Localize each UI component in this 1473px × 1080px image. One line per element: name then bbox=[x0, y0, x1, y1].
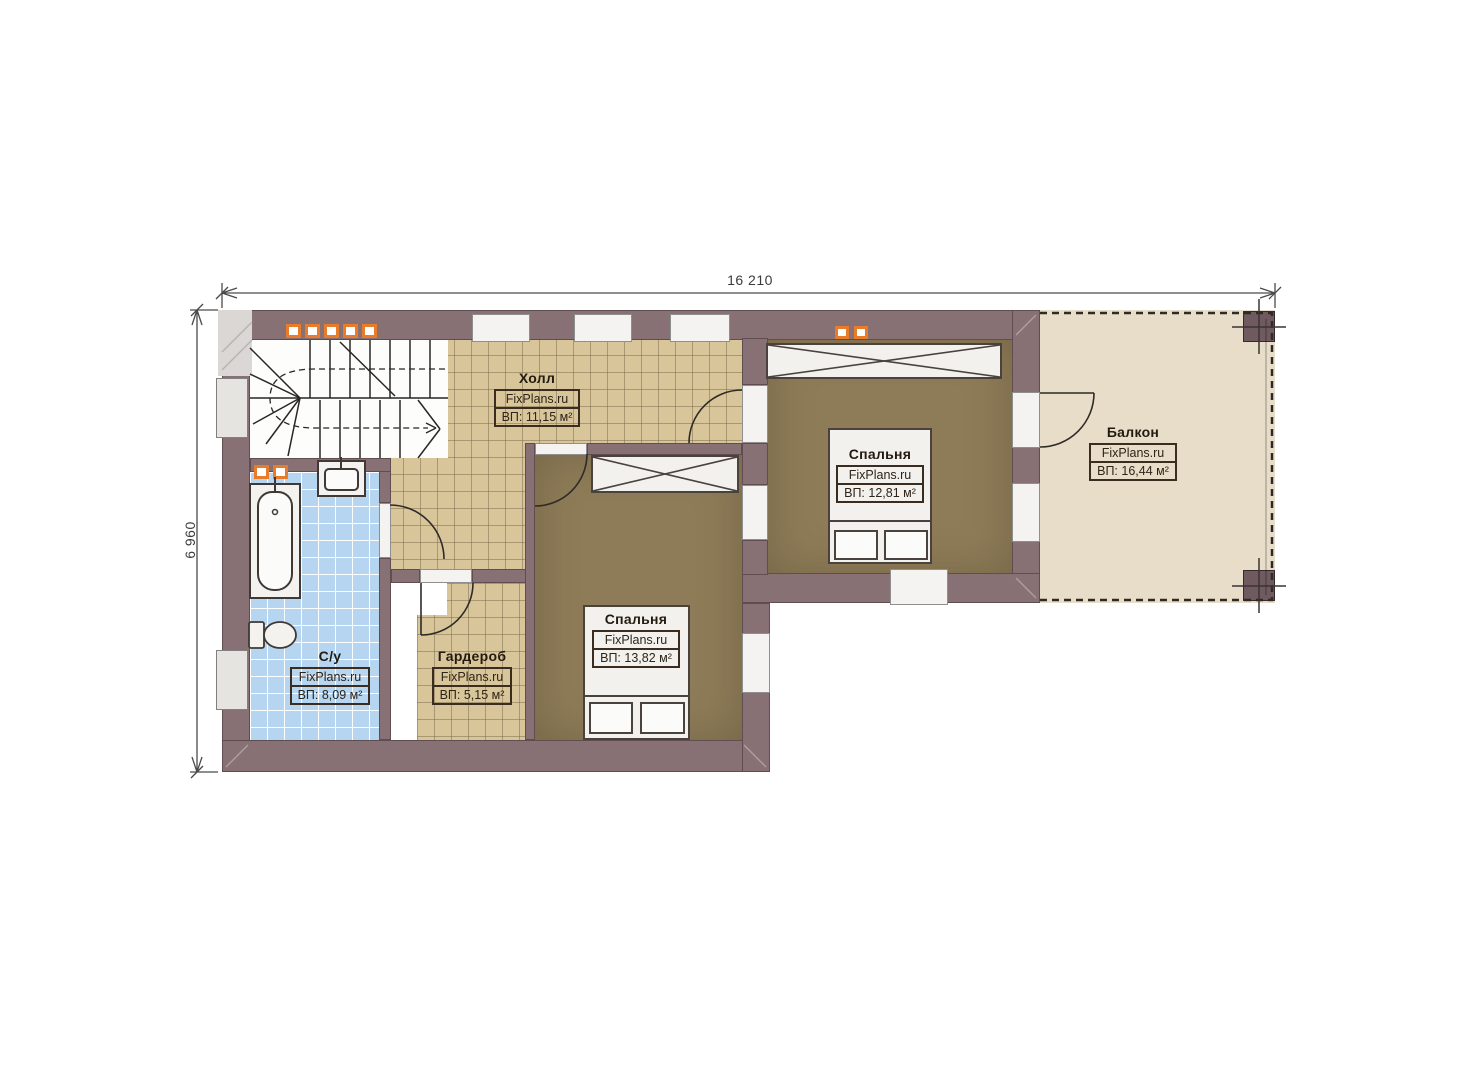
room-name: Спальня bbox=[832, 446, 928, 462]
room-label-wardrobe: Гардероб FixPlans.ru ВП: 5,15 м² bbox=[425, 648, 519, 705]
room-label-balcony: Балкон FixPlans.ru ВП: 16,44 м² bbox=[1085, 424, 1181, 481]
window-bedroom-balcony bbox=[1012, 483, 1040, 542]
window-lower-right-wall bbox=[742, 633, 770, 693]
room-name: Холл bbox=[489, 370, 585, 386]
window-left-upper bbox=[216, 378, 248, 438]
room-name: Гардероб bbox=[425, 648, 519, 664]
room-label-bedroom-lower: Спальня FixPlans.ru ВП: 13,82 м² bbox=[588, 611, 684, 668]
accent-window-7 bbox=[854, 326, 868, 339]
watermark: FixPlans.ru bbox=[292, 669, 369, 685]
label-box: FixPlans.ru ВП: 8,09 м² bbox=[290, 667, 371, 705]
accent-window-6 bbox=[835, 326, 849, 339]
room-area: ВП: 16,44 м² bbox=[1091, 461, 1175, 479]
wall-hall-wardrobe-a bbox=[391, 569, 420, 583]
door-opening-bathroom bbox=[379, 503, 391, 558]
door-opening-bedroom-upper bbox=[742, 385, 768, 443]
wall-bedroom-lower-left bbox=[525, 443, 535, 740]
room-name: Балкон bbox=[1085, 424, 1181, 440]
balcony-post-bottom bbox=[1243, 570, 1275, 601]
label-box: FixPlans.ru ВП: 12,81 м² bbox=[836, 465, 924, 503]
room-area: ВП: 13,82 м² bbox=[594, 648, 678, 666]
door-opening-bedroom-lower bbox=[535, 443, 587, 455]
wall-hall-bedroom-b bbox=[742, 443, 768, 485]
watermark: FixPlans.ru bbox=[434, 669, 511, 685]
bed-upper-line bbox=[828, 520, 932, 522]
accent-window-5 bbox=[362, 324, 377, 338]
accent-window-9 bbox=[273, 465, 288, 479]
window-top-3 bbox=[670, 314, 730, 342]
watermark: FixPlans.ru bbox=[594, 632, 678, 648]
label-box: FixPlans.ru ВП: 5,15 м² bbox=[432, 667, 513, 705]
room-name: С/у bbox=[284, 648, 376, 664]
window-left-lower bbox=[216, 650, 248, 710]
wardrobe-closet-lower-bedroom bbox=[591, 455, 739, 493]
window-bottom-right-section bbox=[890, 569, 948, 605]
bathtub-basin bbox=[257, 491, 293, 591]
stairs-floor bbox=[250, 338, 448, 458]
wall-bath-hall-b bbox=[379, 558, 391, 740]
wall-hall-bedroom-a bbox=[742, 338, 768, 385]
label-box: FixPlans.ru ВП: 16,44 м² bbox=[1089, 443, 1177, 481]
room-label-bedroom-upper: Спальня FixPlans.ru ВП: 12,81 м² bbox=[832, 446, 928, 503]
door-opening-balcony bbox=[1012, 392, 1040, 448]
room-area: ВП: 11,15 м² bbox=[496, 407, 579, 425]
watermark: FixPlans.ru bbox=[838, 467, 922, 483]
bed-lower-pillow-1 bbox=[589, 702, 633, 734]
accent-window-1 bbox=[286, 324, 301, 338]
floor-plan-canvas: 16 210 6 960 Холл FixPlans.ru ВП: 11,15 … bbox=[0, 0, 1473, 1080]
label-box: FixPlans.ru ВП: 13,82 м² bbox=[592, 630, 680, 668]
wardrobe-closet-upper-bedroom bbox=[766, 343, 1002, 379]
corridor-gap bbox=[391, 583, 417, 740]
bed-lower-pillow-2 bbox=[640, 702, 685, 734]
accent-window-2 bbox=[305, 324, 320, 338]
bed-upper-pillow-2 bbox=[884, 530, 928, 560]
room-label-hall: Холл FixPlans.ru ВП: 11,15 м² bbox=[489, 370, 585, 427]
x-lines bbox=[593, 457, 737, 491]
window-top-2 bbox=[574, 314, 632, 342]
balcony-post-top bbox=[1243, 311, 1275, 342]
dimension-top-label: 16 210 bbox=[690, 272, 810, 288]
wardrobe-step bbox=[417, 583, 447, 615]
wall-bottom-left-section bbox=[222, 740, 770, 772]
x-lines bbox=[768, 345, 1000, 377]
bed-lower-line bbox=[583, 695, 690, 697]
window-top-1 bbox=[472, 314, 530, 342]
label-box: FixPlans.ru ВП: 11,15 м² bbox=[494, 389, 581, 427]
room-area: ВП: 8,09 м² bbox=[292, 685, 369, 703]
accent-window-4 bbox=[343, 324, 358, 338]
corner-block-top-left bbox=[218, 310, 252, 376]
accent-window-3 bbox=[324, 324, 339, 338]
accent-window-8 bbox=[254, 465, 269, 479]
room-area: ВП: 12,81 м² bbox=[838, 483, 922, 501]
watermark: FixPlans.ru bbox=[496, 391, 579, 407]
room-label-bathroom: С/у FixPlans.ru ВП: 8,09 м² bbox=[284, 648, 376, 705]
room-area: ВП: 5,15 м² bbox=[434, 685, 511, 703]
door-opening-wardrobe bbox=[420, 569, 472, 583]
dimension-left-label: 6 960 bbox=[182, 510, 198, 570]
watermark: FixPlans.ru bbox=[1091, 445, 1175, 461]
bed-upper-pillow-1 bbox=[834, 530, 878, 560]
wall-right-section-right bbox=[1012, 310, 1040, 603]
room-name: Спальня bbox=[588, 611, 684, 627]
sink-basin bbox=[324, 468, 359, 491]
niche-hall-bedroom bbox=[742, 485, 768, 540]
wall-hall-bedroom-c bbox=[742, 540, 768, 575]
wall-bedroom-lower-top bbox=[587, 443, 742, 455]
